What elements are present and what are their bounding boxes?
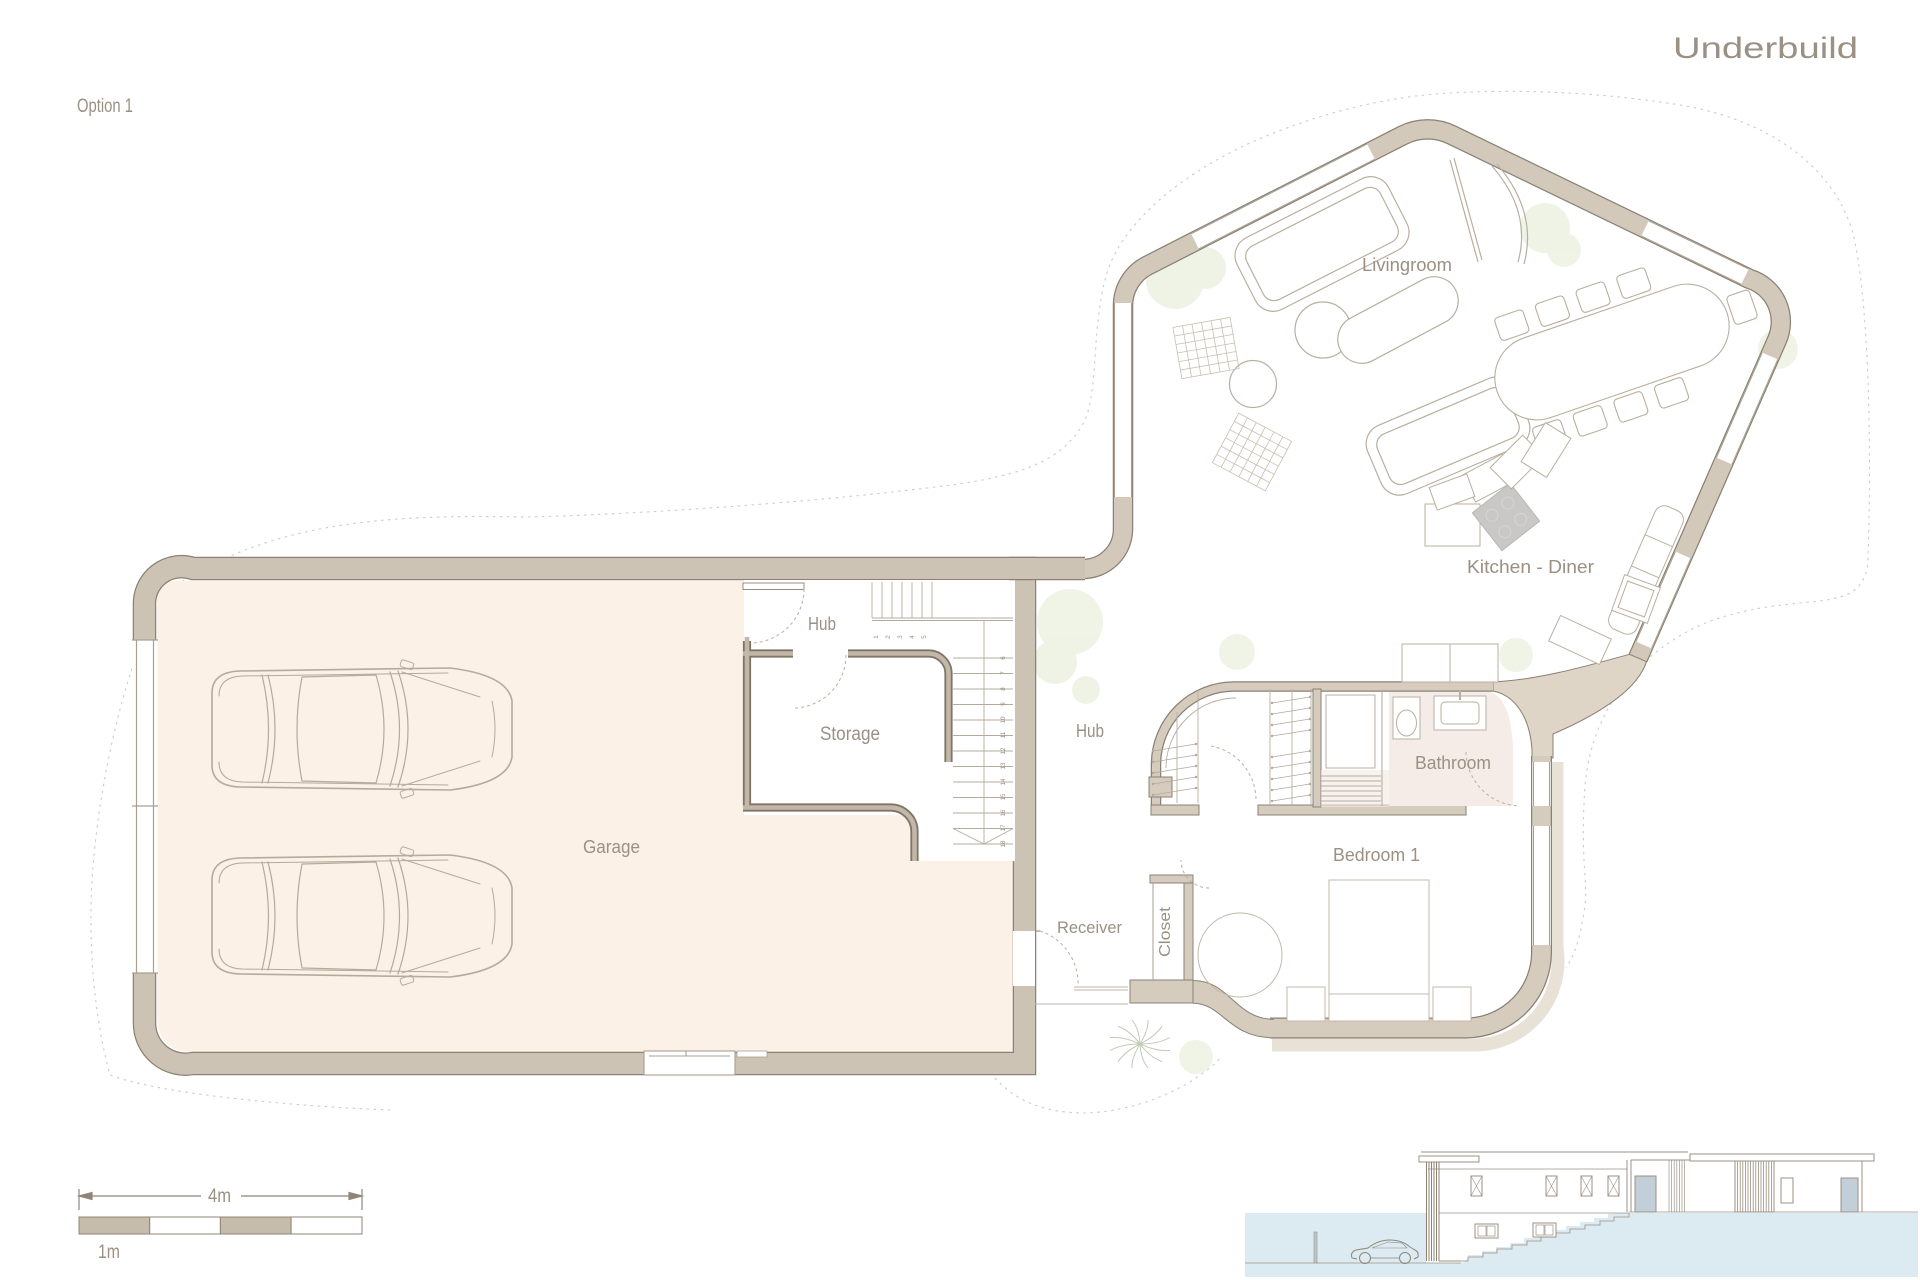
svg-text:7: 7 <box>1000 671 1007 675</box>
svg-text:Receiver: Receiver <box>1057 918 1122 937</box>
svg-text:12: 12 <box>1000 747 1007 754</box>
svg-text:Garage: Garage <box>583 837 640 857</box>
svg-text:Hub: Hub <box>1076 721 1104 741</box>
svg-text:15: 15 <box>1000 793 1007 800</box>
svg-text:2: 2 <box>885 635 892 639</box>
svg-text:10: 10 <box>1000 716 1007 723</box>
svg-text:4: 4 <box>909 635 916 639</box>
svg-text:13: 13 <box>1000 762 1007 769</box>
svg-text:8: 8 <box>1000 687 1007 691</box>
svg-text:Kitchen - Diner: Kitchen - Diner <box>1467 557 1594 577</box>
svg-text:17: 17 <box>1000 824 1007 831</box>
svg-text:9: 9 <box>1000 702 1007 706</box>
svg-text:Bathroom: Bathroom <box>1415 753 1491 773</box>
svg-text:Bedroom 1: Bedroom 1 <box>1333 845 1420 865</box>
svg-text:18: 18 <box>1000 840 1007 847</box>
svg-text:3: 3 <box>897 635 904 639</box>
svg-text:Option 1: Option 1 <box>77 96 133 117</box>
svg-text:Hub: Hub <box>808 614 836 634</box>
svg-text:1: 1 <box>873 635 880 639</box>
svg-text:1m: 1m <box>98 1242 120 1263</box>
svg-text:4m: 4m <box>208 1186 231 1207</box>
svg-text:Storage: Storage <box>820 724 880 745</box>
svg-text:Livingroom: Livingroom <box>1362 255 1452 275</box>
svg-text:5: 5 <box>921 635 928 639</box>
svg-text:11: 11 <box>1000 731 1007 738</box>
svg-text:Underbuild: Underbuild <box>1673 32 1858 65</box>
svg-text:Closet: Closet <box>1157 906 1174 957</box>
svg-text:6: 6 <box>1000 656 1007 660</box>
svg-text:16: 16 <box>1000 809 1007 816</box>
svg-text:14: 14 <box>1000 778 1007 785</box>
